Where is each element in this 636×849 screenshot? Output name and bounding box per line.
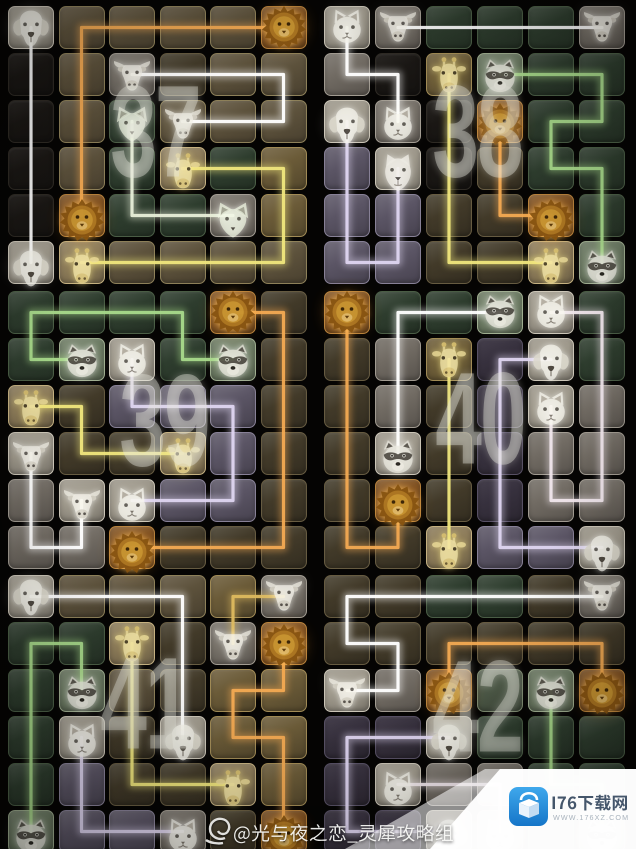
svg-text:WWW.176XZ.COM: WWW.176XZ.COM [553,813,629,822]
